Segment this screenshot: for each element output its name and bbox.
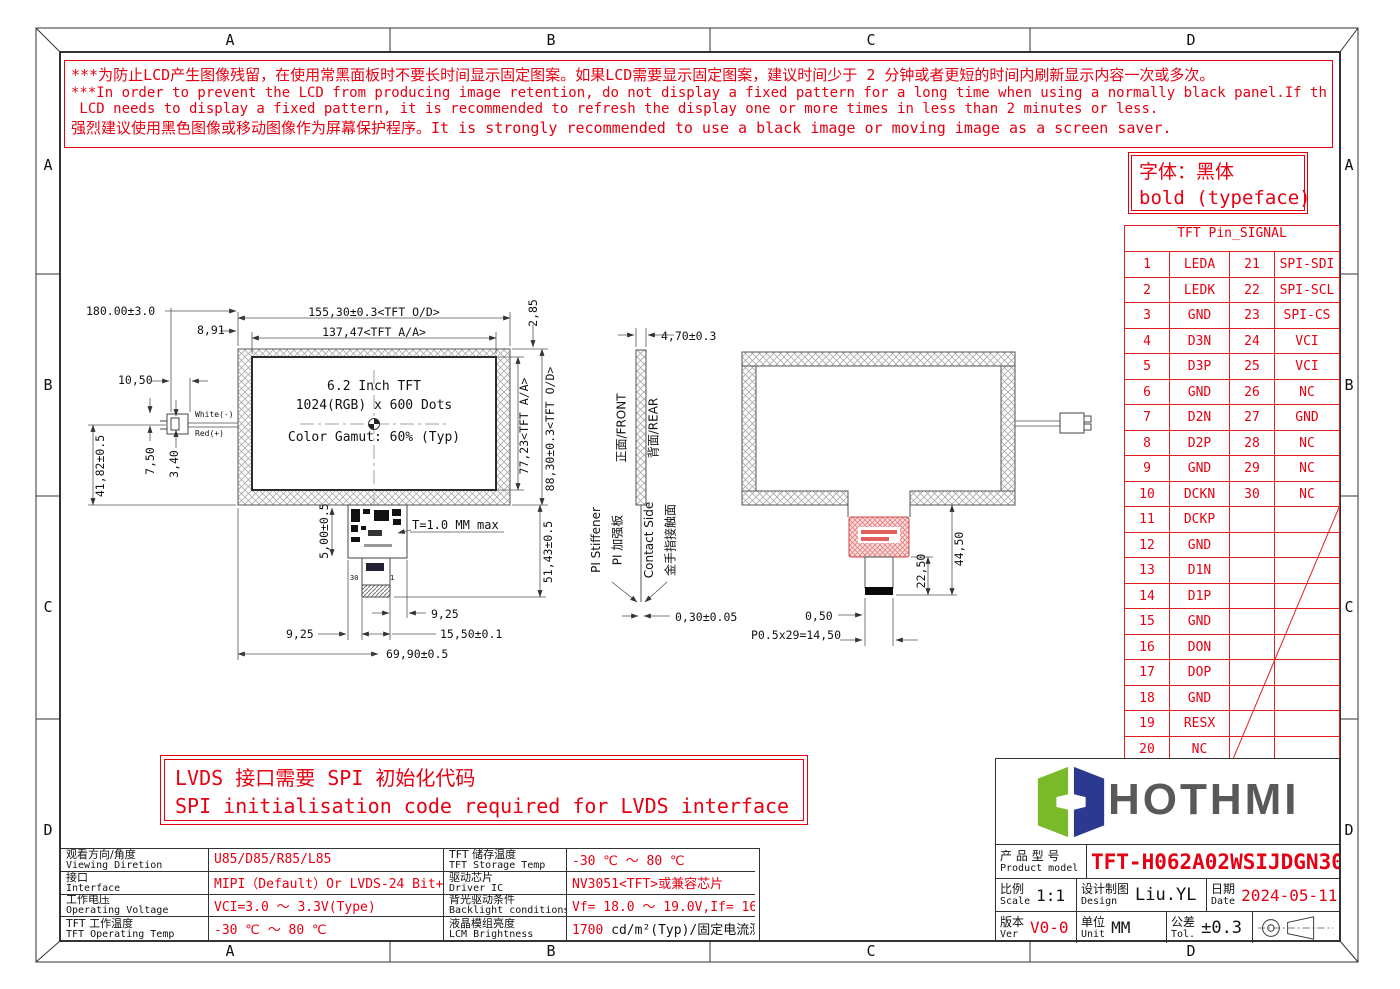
ver-unit-tol-row: 版本 Ver V0-0 单位 Unit MM 公差 Tol. ±0.3	[996, 911, 1339, 943]
pin-table-title: TFT Pin_SIGNAL	[1125, 226, 1339, 252]
rear-side-label: 背面/REAR	[645, 398, 662, 459]
lvds-note-line1: LVDS 接口需要 SPI 初始化代码	[175, 764, 793, 792]
dim-aa-width: 137,47<TFT A/A>	[322, 325, 426, 339]
dim-connector-height: 7,50	[143, 447, 157, 475]
dim-pitch-edge: 0,50	[805, 609, 833, 623]
dim-tail-total: 44,50	[952, 532, 966, 567]
pin-cell: GND	[1170, 686, 1230, 712]
spec-label: 驱动芯片 Driver IC	[444, 872, 567, 895]
dim-tail-length: 22,50	[914, 554, 928, 589]
dim-outline-width: 155,30±0.3<TFT O/D>	[308, 305, 440, 319]
panel-size-text: 6.2 Inch TFT	[327, 379, 421, 394]
stiffener-label-en: PI Stiffener	[589, 507, 603, 573]
brightness-red: 1700	[572, 923, 603, 938]
pin-cell: GND	[1170, 380, 1230, 406]
spec-value: Vf= 18.0 ～ 19.0V,If= 160 mA	[567, 895, 755, 918]
pin-cell: D3N	[1170, 329, 1230, 355]
scale-value: 1:1	[1036, 886, 1065, 905]
warning-line-2: ***In order to prevent the LCD from prod…	[71, 85, 1326, 101]
spec-label-en: Driver IC	[449, 883, 561, 894]
hothmi-logo-icon	[1032, 763, 1110, 841]
unit-label-en: Unit	[1081, 929, 1105, 940]
pin-cell: 27	[1230, 405, 1275, 431]
zone-col-c: C	[866, 31, 875, 49]
dim-fpc-edge-right: 9,25	[431, 607, 459, 621]
pin-cell: LEDA	[1170, 252, 1230, 278]
pin-cell: 2	[1125, 278, 1170, 304]
spec-label-cn: 背光驱动条件	[449, 895, 561, 906]
dim-total-width: 180.00±3.0	[86, 304, 155, 318]
design-label-cn: 设计制图	[1081, 883, 1129, 896]
scale-cell: 比例 Scale 1:1	[996, 879, 1076, 911]
spec-label-cn: 观看方向/角度	[66, 849, 203, 860]
dim-wire-gap: 3,40	[167, 450, 181, 478]
unit-value: MM	[1111, 918, 1130, 937]
logo-row: HOTHMI	[996, 759, 1339, 844]
zone-row-d: D	[43, 821, 52, 839]
wire-white-label: White(-)	[195, 410, 234, 419]
spec-label: 接口 Interface	[61, 872, 209, 895]
rear-view-linework	[742, 352, 1091, 646]
typeface-note-line1: 字体：黑体	[1139, 159, 1297, 185]
product-label-en: Product model	[1000, 863, 1078, 874]
projection-symbol-cell	[1252, 912, 1339, 943]
dim-aa-offset: 8,91	[197, 323, 225, 337]
contact-side-label-en: Contact Side	[642, 502, 656, 578]
pin-cell: 7	[1125, 405, 1170, 431]
spec-value: MIPI（Default）Or LVDS-24 Bit+SPI	[209, 872, 444, 895]
spec-label: 背光驱动条件 Backlight conditions	[444, 895, 567, 918]
product-label-cn: 产 品 型 号	[1000, 850, 1078, 863]
pin-cell: GND	[1170, 609, 1230, 635]
spec-label: 液晶模组亮度 LCM Brightness	[444, 917, 567, 940]
pin-table-diagonal	[1233, 503, 1343, 761]
pin-cell: GND	[1170, 533, 1230, 559]
spec-label-cn: 液晶模组亮度	[449, 918, 561, 929]
product-row: 产 品 型 号 Product model TFT-H062A02WSIJDGN…	[996, 844, 1339, 878]
pin-cell: 25	[1230, 354, 1275, 380]
pin-cell: 6	[1125, 380, 1170, 406]
zone-row-c-right: C	[1344, 598, 1353, 616]
scale-label-cn: 比例	[1000, 883, 1030, 896]
zone-col-b: B	[546, 31, 555, 49]
date-value: 2024-05-11	[1241, 886, 1337, 905]
dim-outline-height: 88,30±0.3<TFT O/D>	[543, 367, 557, 492]
tol-value: ±0.3	[1201, 918, 1242, 938]
pin-cell: VCI	[1275, 329, 1339, 355]
warning-line-1: ***为防止LCD产生图像残留，在使用常黑面板时不要长时间显示固定图案。如果LC…	[71, 64, 1326, 85]
pin-cell: RESX	[1170, 711, 1230, 737]
pin-cell: 15	[1125, 609, 1170, 635]
date-cell: 日期 Date 2024-05-11	[1206, 879, 1339, 911]
panel-resolution-text: 1024(RGB) x 600 Dots	[296, 398, 453, 413]
pin-cell: 24	[1230, 329, 1275, 355]
design-label-en: Design	[1081, 896, 1129, 907]
dim-pitch-total: P0.5x29=14,50	[751, 628, 841, 642]
pin-cell: 28	[1230, 431, 1275, 457]
date-label-en: Date	[1211, 896, 1235, 907]
pin-cell: D1P	[1170, 584, 1230, 610]
zone-col-d-bottom: D	[1186, 942, 1195, 960]
pin-cell: 10	[1125, 482, 1170, 508]
spec-label-cn: TFT 储存温度	[449, 849, 561, 860]
pin-cell: GND	[1170, 303, 1230, 329]
spec-value: U85/D85/R85/L85	[209, 849, 444, 872]
contact-side-label-cn: 金手指接触面	[662, 504, 679, 576]
dim-fpc-drop: 5,00±0.5	[317, 503, 331, 558]
dim-aa-height: 77,23<TFT A/A>	[517, 378, 531, 475]
spec-label-cn: 工作电压	[66, 895, 203, 906]
spec-label-en: LCM Brightness	[449, 929, 561, 940]
zone-col-b-bottom: B	[546, 942, 555, 960]
ver-label-en: Ver	[1000, 929, 1024, 940]
pin-cell: 26	[1230, 380, 1275, 406]
pin-cell: 21	[1230, 252, 1275, 278]
warning-line-3: LCD needs to display a fixed pattern, it…	[71, 101, 1326, 117]
ver-label-cn: 版本	[1000, 916, 1024, 929]
spec-label-en: Operating Voltage	[66, 905, 203, 916]
zone-row-d-right: D	[1344, 821, 1353, 839]
zone-col-a-bottom: A	[225, 942, 234, 960]
design-value: Liu.YL	[1135, 885, 1196, 905]
pin-cell: 17	[1125, 660, 1170, 686]
pin-cell: 29	[1230, 456, 1275, 482]
zone-row-b: B	[43, 376, 52, 394]
dim-top-border: 2,85	[526, 299, 540, 327]
pin-cell: 19	[1125, 711, 1170, 737]
pin-cell: D2P	[1170, 431, 1230, 457]
zone-col-a: A	[225, 31, 234, 49]
pin-cell: SPI-SCL	[1275, 278, 1339, 304]
spec-label-en: TFT Operating Temp	[66, 929, 203, 940]
spec-table: 观看方向/角度 Viewing Diretion U85/D85/R85/L85…	[60, 848, 760, 941]
pin-cell: D3P	[1170, 354, 1230, 380]
typeface-note-inner: 字体：黑体 bold (typeface)	[1131, 155, 1305, 211]
lvds-note-inner: LVDS 接口需要 SPI 初始化代码 SPI initialisation c…	[164, 759, 804, 821]
pin-cell: 4	[1125, 329, 1170, 355]
version-cell: 版本 Ver V0-0	[996, 912, 1076, 943]
pin-cell: DCKP	[1170, 507, 1230, 533]
zone-row-a: A	[43, 156, 52, 174]
pin-cell: DCKN	[1170, 482, 1230, 508]
fpc-pin30-label: 30	[350, 574, 358, 582]
pin-cell: NC	[1275, 431, 1339, 457]
product-label-cell: 产 品 型 号 Product model	[996, 845, 1086, 878]
unit-label-cn: 单位	[1081, 916, 1105, 929]
front-side-label: 正面/FRONT	[613, 393, 630, 462]
pin-cell: 22	[1230, 278, 1275, 304]
spec-label: TFT 工作温度 TFT Operating Temp	[61, 917, 209, 940]
dim-module-thickness: 4,70±0.3	[661, 329, 716, 343]
dim-fpc-length: 51,43±0.5	[541, 521, 555, 583]
retention-warning-box: ***为防止LCD产生图像残留，在使用常黑面板时不要长时间显示固定图案。如果LC…	[64, 60, 1333, 148]
zone-row-b-right: B	[1344, 376, 1353, 394]
zone-col-c-bottom: C	[866, 942, 875, 960]
pin-cell: SPI-CS	[1275, 303, 1339, 329]
warning-line-4: 强烈建议使用黑色图像或移动图像作为屏幕保护程序。It is strongly r…	[71, 117, 1326, 138]
product-model: TFT-H062A02WSIJDGN30	[1091, 850, 1339, 874]
design-cell: 设计制图 Design Liu.YL	[1076, 879, 1206, 911]
thickness-note: T=1.0 MM max	[412, 518, 499, 532]
scale-design-date-row: 比例 Scale 1:1 设计制图 Design Liu.YL 日期 Date …	[996, 878, 1339, 911]
ver-value: V0-0	[1030, 918, 1069, 937]
pin-cell: VCI	[1275, 354, 1339, 380]
pin-cell: DON	[1170, 635, 1230, 661]
spec-label-en: TFT Storage Temp	[449, 860, 561, 871]
pin-cell: DOP	[1170, 660, 1230, 686]
dim-fpc-thickness: 0,30±0.05	[675, 610, 737, 624]
pin-cell: 3	[1125, 303, 1170, 329]
pin-cell: D1N	[1170, 558, 1230, 584]
stiffener-label-cn: PI 加强板	[609, 515, 626, 566]
spec-label-cn: TFT 工作温度	[66, 918, 203, 929]
product-model-cell: TFT-H062A02WSIJDGN30	[1086, 845, 1339, 878]
tol-label-cn: 公差	[1171, 916, 1195, 929]
wire-red-label: Red(+)	[195, 429, 224, 438]
pin-cell: NC	[1275, 380, 1339, 406]
spec-label: TFT 储存温度 TFT Storage Temp	[444, 849, 567, 872]
pin-cell: 9	[1125, 456, 1170, 482]
pin-cell: NC	[1275, 456, 1339, 482]
third-angle-projection-icon	[1257, 914, 1335, 942]
dim-fpc-edge-left: 9,25	[286, 627, 314, 641]
pin-cell: 14	[1125, 584, 1170, 610]
unit-cell: 单位 Unit MM	[1076, 912, 1166, 943]
title-block: HOTHMI 产 品 型 号 Product model TFT-H062A02…	[995, 758, 1340, 941]
typeface-note-box: 字体：黑体 bold (typeface)	[1128, 152, 1308, 214]
spec-value: -30 ℃ ～ 80 ℃	[209, 917, 444, 940]
dim-connector-width: 10,50	[118, 373, 153, 387]
spec-label-cn: 驱动芯片	[449, 872, 561, 883]
spec-value: -30 ℃ ～ 80 ℃	[567, 849, 755, 872]
pin-cell: 23	[1230, 303, 1275, 329]
pin-cell: GND	[1275, 405, 1339, 431]
dim-tail-width: 15,50±0.1	[440, 627, 502, 641]
spec-value: NV3051<TFT>或兼容芯片	[567, 872, 755, 895]
spec-label-en: Backlight conditions	[449, 905, 561, 916]
spec-label: 工作电压 Operating Voltage	[61, 895, 209, 918]
spec-value-brightness: 1700 cd/m²(Typ)/固定电流测试	[567, 917, 755, 940]
drawing-sheet: A B C D A B C D A B C D A B C D ***为防止LC…	[0, 0, 1400, 989]
pin-cell: 16	[1125, 635, 1170, 661]
spec-label-cn: 接口	[66, 872, 203, 883]
front-view-linework	[88, 308, 548, 660]
pin-cell: SPI-SDI	[1275, 252, 1339, 278]
dim-fpc-offset: 69,90±0.5	[386, 647, 448, 661]
scale-label-en: Scale	[1000, 896, 1030, 907]
pin-cell: 18	[1125, 686, 1170, 712]
zone-row-c: C	[43, 598, 52, 616]
pin-cell: 1	[1125, 252, 1170, 278]
spec-label: 观看方向/角度 Viewing Diretion	[61, 849, 209, 872]
brightness-rest: cd/m²(Typ)/固定电流测试	[603, 923, 755, 938]
typeface-note-line2: bold (typeface)	[1139, 185, 1297, 211]
lvds-note-box: LVDS 接口需要 SPI 初始化代码 SPI initialisation c…	[160, 755, 808, 825]
pin-cell: 12	[1125, 533, 1170, 559]
hothmi-wordmark: HOTHMI	[1108, 775, 1300, 825]
pin-cell: LEDK	[1170, 278, 1230, 304]
tolerance-cell: 公差 Tol. ±0.3	[1166, 912, 1252, 943]
zone-col-d: D	[1186, 31, 1195, 49]
pin-cell: GND	[1170, 456, 1230, 482]
fpc-pin1-label: 1	[390, 574, 394, 582]
spec-value: VCI=3.0 ～ 3.3V(Type)	[209, 895, 444, 918]
pin-cell: 13	[1125, 558, 1170, 584]
zone-row-a-right: A	[1344, 156, 1353, 174]
lvds-note-line2: SPI initialisation code required for LVD…	[175, 792, 793, 820]
pin-cell: 5	[1125, 354, 1170, 380]
pin-cell: 11	[1125, 507, 1170, 533]
tol-label-en: Tol.	[1171, 929, 1195, 940]
spec-label-en: Viewing Diretion	[66, 860, 203, 871]
date-label-cn: 日期	[1211, 883, 1235, 896]
pin-cell: D2N	[1170, 405, 1230, 431]
panel-gamut-text: Color Gamut: 60% (Typ)	[288, 430, 460, 445]
dim-wire-y: 41,82±0.5	[93, 435, 107, 497]
pin-cell: 8	[1125, 431, 1170, 457]
spec-label-en: Interface	[66, 883, 203, 894]
